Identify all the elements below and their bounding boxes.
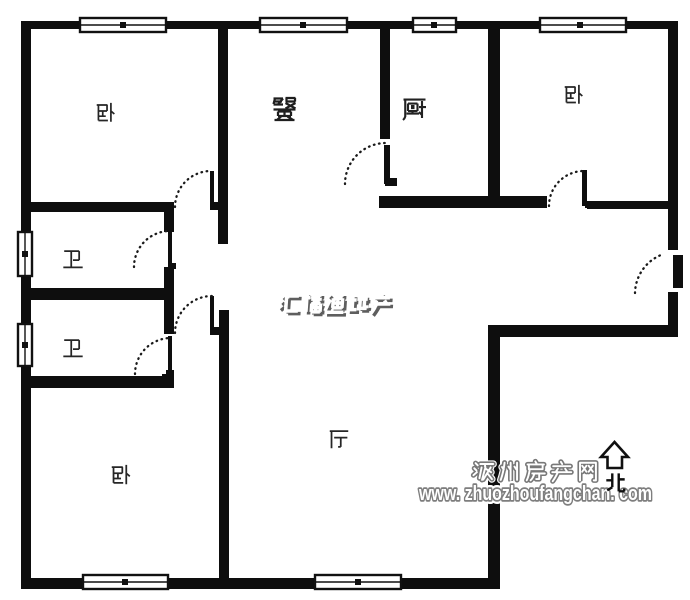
svg-text:www. zhuozhoufangchan. com: www. zhuozhoufangchan. com xyxy=(418,483,652,505)
